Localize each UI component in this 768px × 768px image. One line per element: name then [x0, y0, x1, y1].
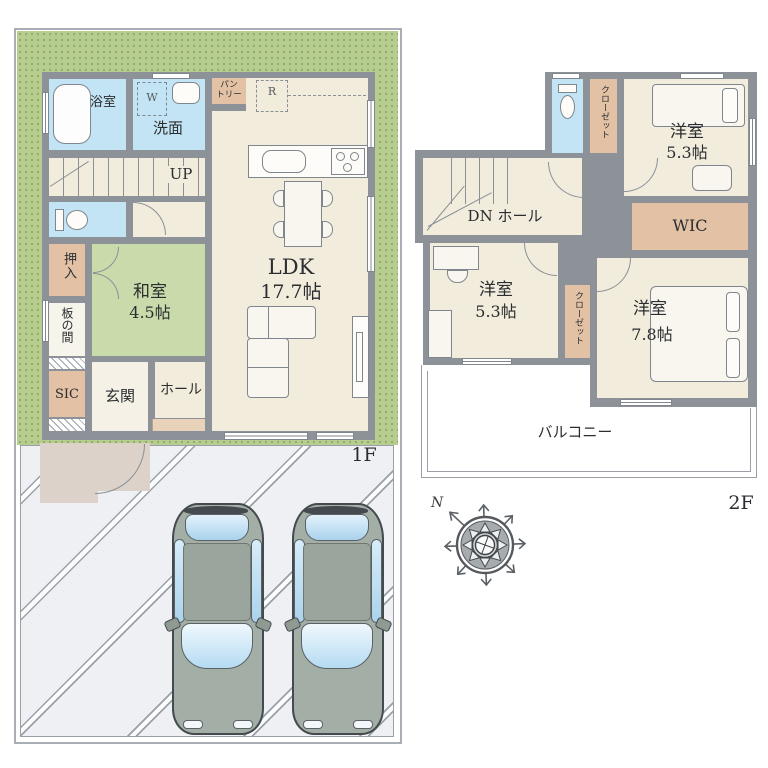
label-closet-top: クローゼット: [598, 85, 611, 139]
balcony-rail-inner: [427, 471, 751, 472]
label-ldk-size: 17.7帖: [260, 282, 321, 303]
sic-shelf-top: [49, 358, 85, 369]
label-genkan: 玄関: [105, 388, 135, 405]
balcony-rail: [421, 477, 757, 478]
label-pantry-1: パン: [220, 81, 237, 90]
label-itanoma: 板の間: [59, 307, 76, 343]
car-side-window: [371, 539, 382, 623]
floor-plan-canvas: 浴室 洗面 W UP パン トリー R 押入 板の間 和室 4.5帖 SIC 玄…: [0, 0, 768, 768]
label-floor-2f: 2F: [728, 493, 753, 514]
sofa-top: [247, 306, 316, 339]
label-washroom: 洗面: [153, 120, 183, 137]
nightstand: [692, 165, 732, 191]
window: [552, 73, 580, 79]
bed-right-pillow: [726, 292, 740, 332]
burner: [336, 152, 345, 161]
car-headlight: [183, 720, 203, 729]
sofa-line: [268, 307, 269, 338]
car-top-view: [292, 503, 384, 735]
toilet-bowl-2f: [560, 95, 575, 119]
label-hall-1f: ホール: [160, 383, 202, 398]
label-dn-hall: DN ホール: [468, 208, 543, 225]
bed-left: [428, 310, 452, 358]
window: [367, 100, 375, 148]
car-windshield: [181, 623, 253, 669]
balcony-rail: [756, 403, 757, 478]
label-washer: W: [146, 92, 157, 104]
burner: [350, 152, 359, 161]
dining-chair: [273, 190, 284, 207]
window: [749, 118, 756, 166]
window: [316, 432, 354, 440]
window: [620, 399, 672, 406]
label-ldk: LDK: [268, 256, 314, 279]
pantry-wall: [212, 104, 246, 111]
stairs-dn: [438, 158, 518, 204]
car-headlight: [233, 720, 253, 729]
car-rear-glass: [305, 514, 369, 541]
bed-top-pillow: [722, 88, 738, 123]
car-roof: [303, 543, 371, 621]
car-headlight: [353, 720, 373, 729]
label-pantry-2: トリー: [216, 91, 242, 100]
sic-shelf-bottom: [49, 419, 85, 431]
balcony-rail: [421, 365, 422, 478]
burner: [343, 163, 352, 172]
window: [462, 358, 512, 365]
dining-table: [284, 181, 322, 247]
car-windshield: [301, 623, 373, 669]
label-bedroom-right-size: 7.8帖: [631, 326, 672, 344]
toilet-tank-1f: [55, 209, 64, 231]
car-roof: [183, 543, 251, 621]
toilet-bowl-1f: [66, 210, 88, 230]
car-rear-glass: [185, 514, 249, 541]
kitchen-sink: [262, 150, 306, 173]
window: [42, 92, 49, 134]
bed-right-pillow: [726, 338, 740, 378]
label-floor-1f: 1F: [351, 445, 376, 466]
toilet-tank-2f: [558, 84, 577, 93]
desk: [433, 246, 479, 270]
window: [42, 300, 49, 342]
car-side-window: [251, 539, 262, 623]
label-closet-mid: クローゼット: [572, 291, 585, 345]
label-bedroom-right: 洋室: [633, 300, 667, 319]
washroom-sink: [172, 82, 200, 104]
label-balcony: バルコニー: [538, 424, 613, 441]
label-sic: SIC: [55, 388, 79, 402]
sofa-line: [248, 367, 288, 368]
sofa-side: [247, 338, 289, 398]
label-bathroom: 浴室: [90, 96, 116, 110]
label-bedroom-top: 洋室: [670, 123, 704, 142]
label-stairs-up: UP: [168, 166, 195, 183]
bathtub: [53, 84, 91, 144]
car-top-view: [172, 503, 264, 735]
car-headlight: [303, 720, 323, 729]
label-bedroom-left-size: 5.3帖: [475, 303, 516, 321]
compass-rose: N: [428, 492, 542, 604]
compass-north-label: N: [430, 495, 444, 511]
balcony-rail-inner: [750, 408, 751, 472]
balcony-rail-inner: [427, 371, 428, 472]
label-washitsu-size: 4.5帖: [129, 304, 170, 322]
window: [680, 73, 724, 79]
tv-screen: [356, 332, 363, 382]
label-bedroom-top-size: 5.3帖: [666, 144, 707, 162]
dining-chair: [273, 221, 284, 238]
label-bedroom-left: 洋室: [479, 281, 513, 300]
label-wic: WIC: [672, 217, 707, 235]
window: [152, 73, 190, 79]
label-fridge: R: [268, 86, 276, 98]
window: [224, 432, 308, 440]
entrance-approach-step: [40, 491, 98, 503]
window: [367, 196, 375, 272]
hall-step: [152, 419, 205, 431]
counter-dashed-line: [288, 95, 366, 96]
label-oshiire: 押入: [59, 252, 78, 280]
label-washitsu: 和室: [133, 283, 167, 302]
